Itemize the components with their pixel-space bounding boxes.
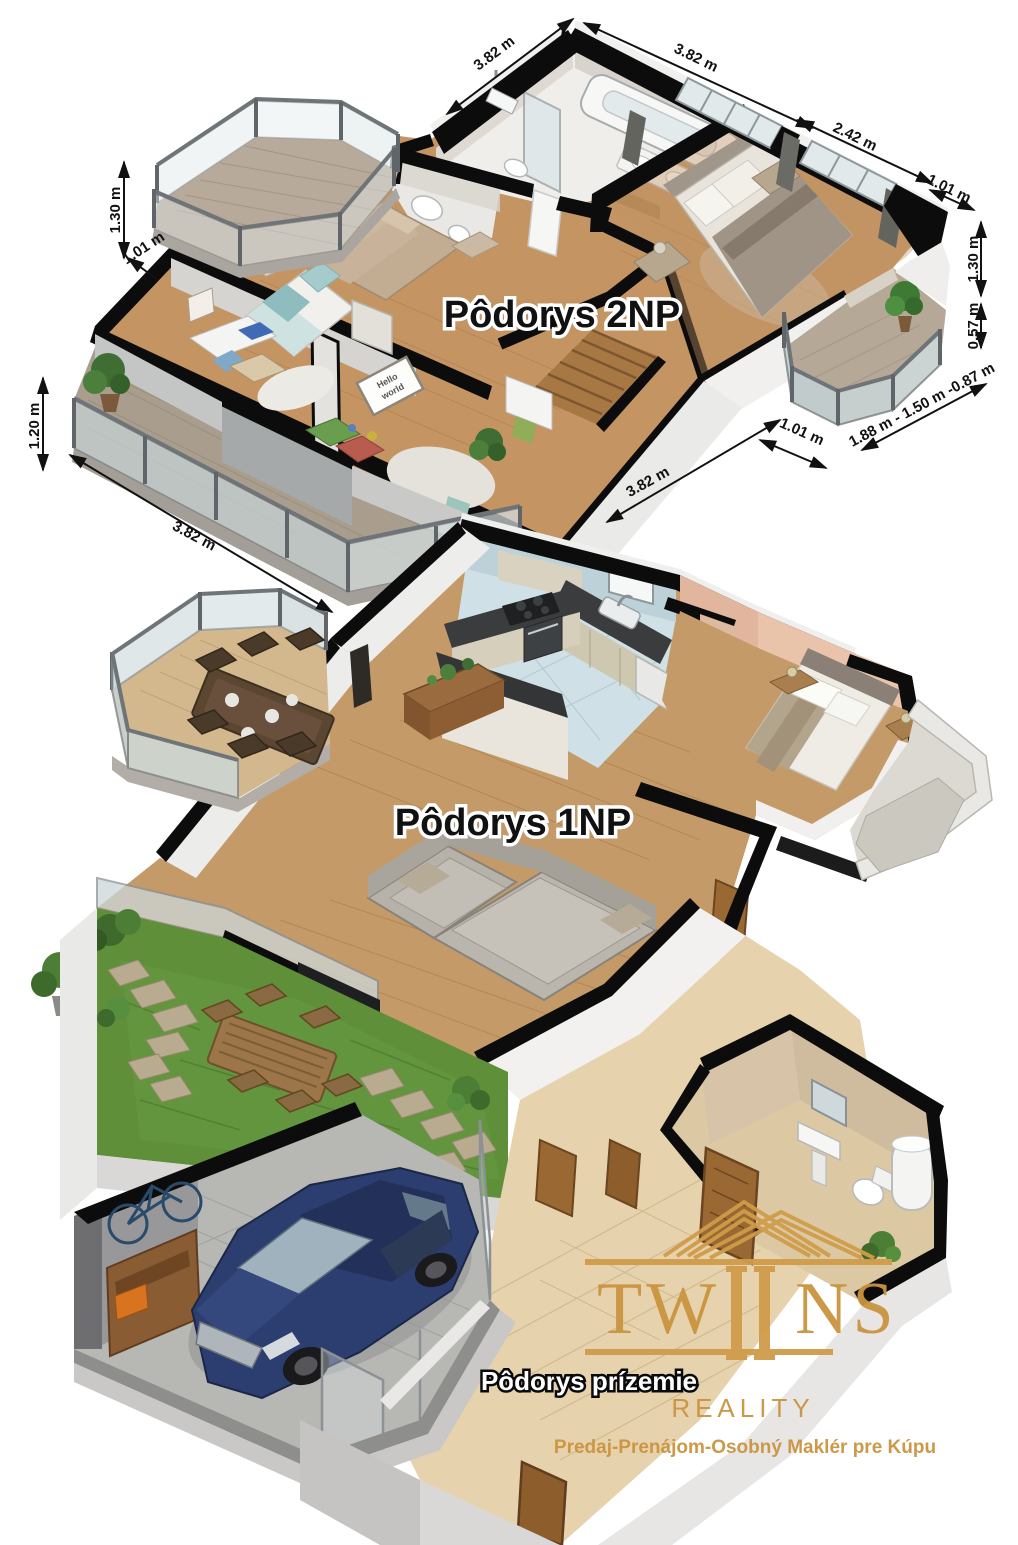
svg-text:NS: NS bbox=[795, 1268, 898, 1350]
svg-text:1.30 m: 1.30 m bbox=[965, 236, 982, 283]
svg-text:Pôdorys prízemie: Pôdorys prízemie bbox=[481, 1366, 697, 1396]
svg-text:1.30 m: 1.30 m bbox=[107, 187, 124, 234]
svg-text:0.57 m: 0.57 m bbox=[965, 303, 982, 350]
svg-text:Predaj-Prenájom-Osobný Maklér: Predaj-Prenájom-Osobný Maklér pre Kúpu bbox=[554, 1437, 936, 1458]
svg-text:1.20 m: 1.20 m bbox=[26, 403, 43, 450]
svg-text:REALITY: REALITY bbox=[671, 1393, 814, 1423]
svg-text:TW: TW bbox=[597, 1268, 720, 1350]
svg-text:Pôdorys 2NP: Pôdorys 2NP bbox=[444, 294, 681, 336]
svg-text:Pôdorys 1NP: Pôdorys 1NP bbox=[395, 802, 632, 844]
